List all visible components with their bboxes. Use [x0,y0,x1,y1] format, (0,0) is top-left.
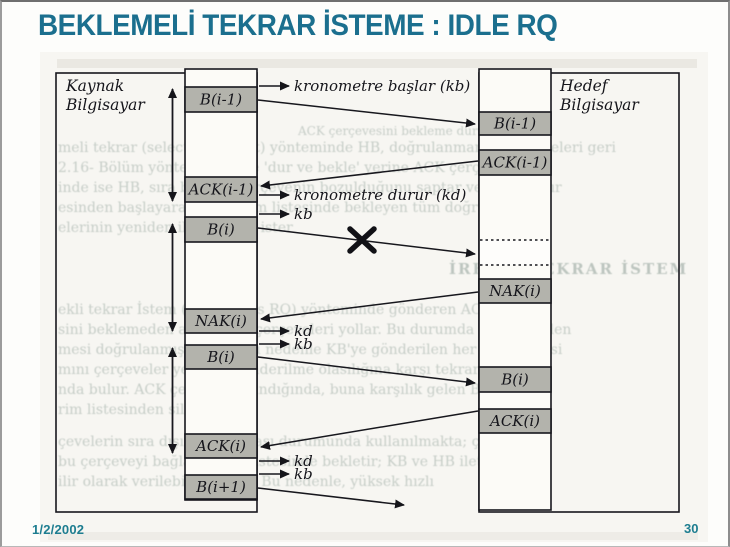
ghost-text-line: nda bulur. ACK çerçevesi alındığında, bu… [58,382,552,398]
frame-box-label: B(i) [206,221,235,239]
target-computer-label: Hedef [559,77,611,95]
frame-box-label: B(i) [500,371,529,389]
frame-box-label: B(i+1) [195,478,246,496]
frame-box-label: B(i-1) [199,91,242,109]
protocol-timing-diagram: ACK çerçevesini bekleme durumumeli tekra… [2,2,730,547]
scan-band-bottom [48,532,698,540]
slide-date: 1/2/2002 [32,522,84,537]
annotation-label: kb [294,205,313,223]
frame-box-label: ACK(i) [488,412,540,430]
ghost-text-line: ACK çerçevesini bekleme durumu [297,124,505,138]
frame-box-label: NAK(i) [488,282,541,300]
frame-box-label: NAK(i) [194,312,247,330]
target-computer-label: Bilgisayar [559,96,640,114]
scan-band-top [57,59,697,68]
frame-box-label: B(i-1) [493,115,536,133]
page-number: 30 [684,521,698,536]
annotation-label: kb [294,465,313,483]
annotation-label: kronometre başlar (kb) [294,77,470,95]
source-computer-label: Bilgisayar [65,96,146,114]
frame-box-label: B(i) [206,348,235,366]
ghost-text-line: mını çerçeveler yeniden gönderilme olası… [58,362,497,378]
source-computer-label: Kaynak [65,77,124,95]
ghost-text-line: elerinin yeniden iletilmesini ister [58,220,293,236]
annotation-label: kronometre durur (kd) [294,186,467,204]
annotation-label: kb [294,335,313,353]
ghost-text-line: bu çerçeveyi bağlantı alan listesinde be… [58,454,483,470]
frame-box-label: ACK(i) [194,437,246,455]
slide: BEKLEMELİ TEKRAR İSTEME : IDLE RQ ACK çe… [0,0,730,547]
frame-box-label: ACK(i-1) [481,154,548,172]
dashed-placeholder-box [480,240,550,265]
frame-box-label: ACK(i-1) [187,181,254,199]
ghost-text-line: çevelerin sıra dışında alınması durumund… [58,434,539,450]
